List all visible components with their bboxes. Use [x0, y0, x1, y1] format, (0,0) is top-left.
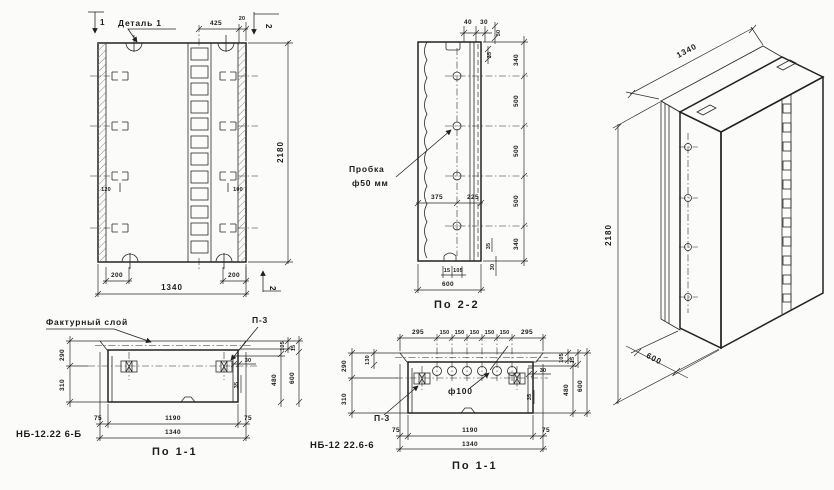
hole-diameter-label: ф100	[448, 386, 473, 396]
svg-text:340: 340	[513, 238, 520, 250]
panel-side-face	[680, 112, 721, 348]
svg-text:1190: 1190	[462, 427, 478, 434]
svg-text:1: 1	[100, 18, 105, 27]
svg-text:30: 30	[490, 264, 496, 271]
svg-text:600: 600	[577, 380, 584, 392]
svg-text:150: 150	[455, 330, 465, 336]
svg-text:2: 2	[264, 24, 273, 29]
section-mark-2-top-right: 2	[254, 12, 279, 34]
model-label-6: НБ-12 22.6-6	[310, 440, 374, 451]
section-mark-2-bottom-right: 2	[263, 271, 281, 292]
svg-text:600: 600	[289, 372, 296, 384]
plug-callout-line2: ф50 мм	[352, 178, 389, 188]
top-lifting-holes	[697, 60, 796, 115]
section-1-1-6-title: По 1-1	[452, 460, 498, 472]
bottom-notch	[444, 253, 456, 261]
svg-text:290: 290	[341, 360, 348, 372]
detail-callout-label: Деталь 1	[118, 18, 162, 28]
key-scallop-profile	[425, 42, 428, 258]
svg-text:35: 35	[527, 394, 533, 401]
svg-text:500: 500	[513, 145, 520, 157]
svg-text:310: 310	[341, 393, 348, 405]
svg-text:2180: 2180	[276, 141, 285, 163]
panel-drawing: 120 100 Деталь 1 1 2 2 425 20 2180 200 2…	[0, 0, 834, 490]
svg-text:35: 35	[234, 382, 240, 389]
facing-layer-callout: Фактурный слой	[46, 317, 128, 327]
svg-text:295: 295	[412, 329, 424, 336]
dovetail-key-strip	[188, 25, 211, 270]
isometric-view: 1340 2180 600	[604, 25, 823, 405]
svg-text:290: 290	[59, 349, 66, 361]
svg-text:500: 500	[513, 95, 520, 107]
panel-front-face	[721, 77, 823, 348]
svg-text:150: 150	[440, 330, 450, 336]
svg-text:75: 75	[94, 415, 102, 422]
svg-text:75: 75	[542, 427, 550, 434]
section-2-2-dimensions: 40 30 30 35 340 500 500 500 340 375 225 …	[414, 19, 528, 293]
hole-row	[433, 367, 517, 376]
p3-callout: П-3	[252, 315, 268, 325]
svg-text:130: 130	[365, 355, 371, 365]
svg-text:150: 150	[500, 330, 510, 336]
facing-slab-face	[661, 101, 680, 330]
svg-text:225: 225	[467, 194, 479, 201]
svg-text:15: 15	[291, 345, 297, 352]
svg-text:340: 340	[513, 54, 520, 66]
plug-callout-line1: Пробка	[349, 164, 385, 174]
section-2-2-title: По 2-2	[434, 299, 480, 311]
svg-text:35: 35	[487, 52, 493, 59]
panel-top-face	[680, 57, 823, 132]
top-recess	[446, 42, 460, 50]
front-elevation-view: 120 100 Деталь 1 1 2 2 425 20 2180 200 2…	[88, 12, 293, 297]
anchor-symbols	[90, 72, 258, 232]
svg-text:500: 500	[513, 195, 520, 207]
model-label-b: НБ-12.22 6-Б	[16, 429, 82, 440]
p3-leader	[231, 327, 258, 360]
section-1-1-b-dimensions: 290 310 105 15 600 30 35 480 75 1190 75 …	[59, 336, 303, 441]
svg-text:375: 375	[431, 194, 443, 201]
svg-text:200: 200	[111, 272, 123, 279]
plug-holes-iso	[685, 144, 692, 301]
section-1-1-b-title: По 1-1	[152, 446, 198, 458]
svg-text:1340: 1340	[675, 42, 698, 60]
p3-leader	[384, 386, 418, 415]
hole-leader	[470, 373, 489, 388]
svg-text:1340: 1340	[161, 283, 183, 292]
svg-text:310: 310	[59, 379, 66, 391]
svg-text:150: 150	[470, 330, 480, 336]
svg-text:295: 295	[521, 329, 533, 336]
svg-text:425: 425	[210, 20, 222, 27]
svg-text:2: 2	[268, 286, 277, 291]
svg-text:2180: 2180	[604, 224, 613, 246]
svg-text:150: 150	[485, 330, 495, 336]
svg-text:1340: 1340	[462, 441, 478, 448]
svg-text:40: 40	[464, 19, 472, 26]
svg-text:1340: 1340	[165, 429, 181, 436]
anchor-offset-right-label: 100	[233, 187, 243, 193]
dovetail-channel	[782, 94, 791, 314]
p3-callout: П-3	[374, 413, 390, 423]
blueprint-page: 120 100 Деталь 1 1 2 2 425 20 2180 200 2…	[0, 0, 834, 490]
svg-text:105: 105	[453, 268, 463, 274]
svg-text:35: 35	[486, 243, 492, 250]
svg-text:15: 15	[444, 268, 451, 274]
svg-text:480: 480	[563, 384, 570, 396]
svg-text:200: 200	[228, 272, 240, 279]
svg-text:105: 105	[559, 353, 565, 363]
detail-callout-leader	[128, 29, 176, 42]
svg-text:30: 30	[480, 19, 488, 26]
isometric-dimensions: 1340 2180 600	[604, 25, 763, 405]
plug-callout-leader	[396, 130, 451, 177]
svg-text:1190: 1190	[165, 415, 181, 422]
svg-text:600: 600	[442, 281, 454, 288]
svg-text:75: 75	[244, 415, 252, 422]
section-2-2-view: Пробка ф50 мм 40 30 30 35 340 500 500 50…	[349, 19, 528, 311]
svg-text:480: 480	[271, 374, 278, 386]
svg-text:20: 20	[239, 16, 246, 22]
section-1-1-6-view: ф100 П-3 295 150 150 150 150 150 295 290…	[310, 329, 591, 472]
elevation-dimensions: 425 20 2180 200 200 1340	[95, 16, 293, 297]
facing-callout-leader	[46, 329, 151, 342]
section-1-1-b-view: Фактурный слой П-3 290 310 105 15 600 30…	[16, 315, 303, 458]
hole-leader-upper	[490, 346, 508, 370]
anchor-offset-left-label: 120	[101, 187, 111, 193]
svg-text:30: 30	[496, 30, 502, 37]
section-mark-1-top-left: 1	[88, 12, 105, 33]
svg-text:75: 75	[392, 427, 400, 434]
lifting-loop-icons	[122, 35, 234, 269]
